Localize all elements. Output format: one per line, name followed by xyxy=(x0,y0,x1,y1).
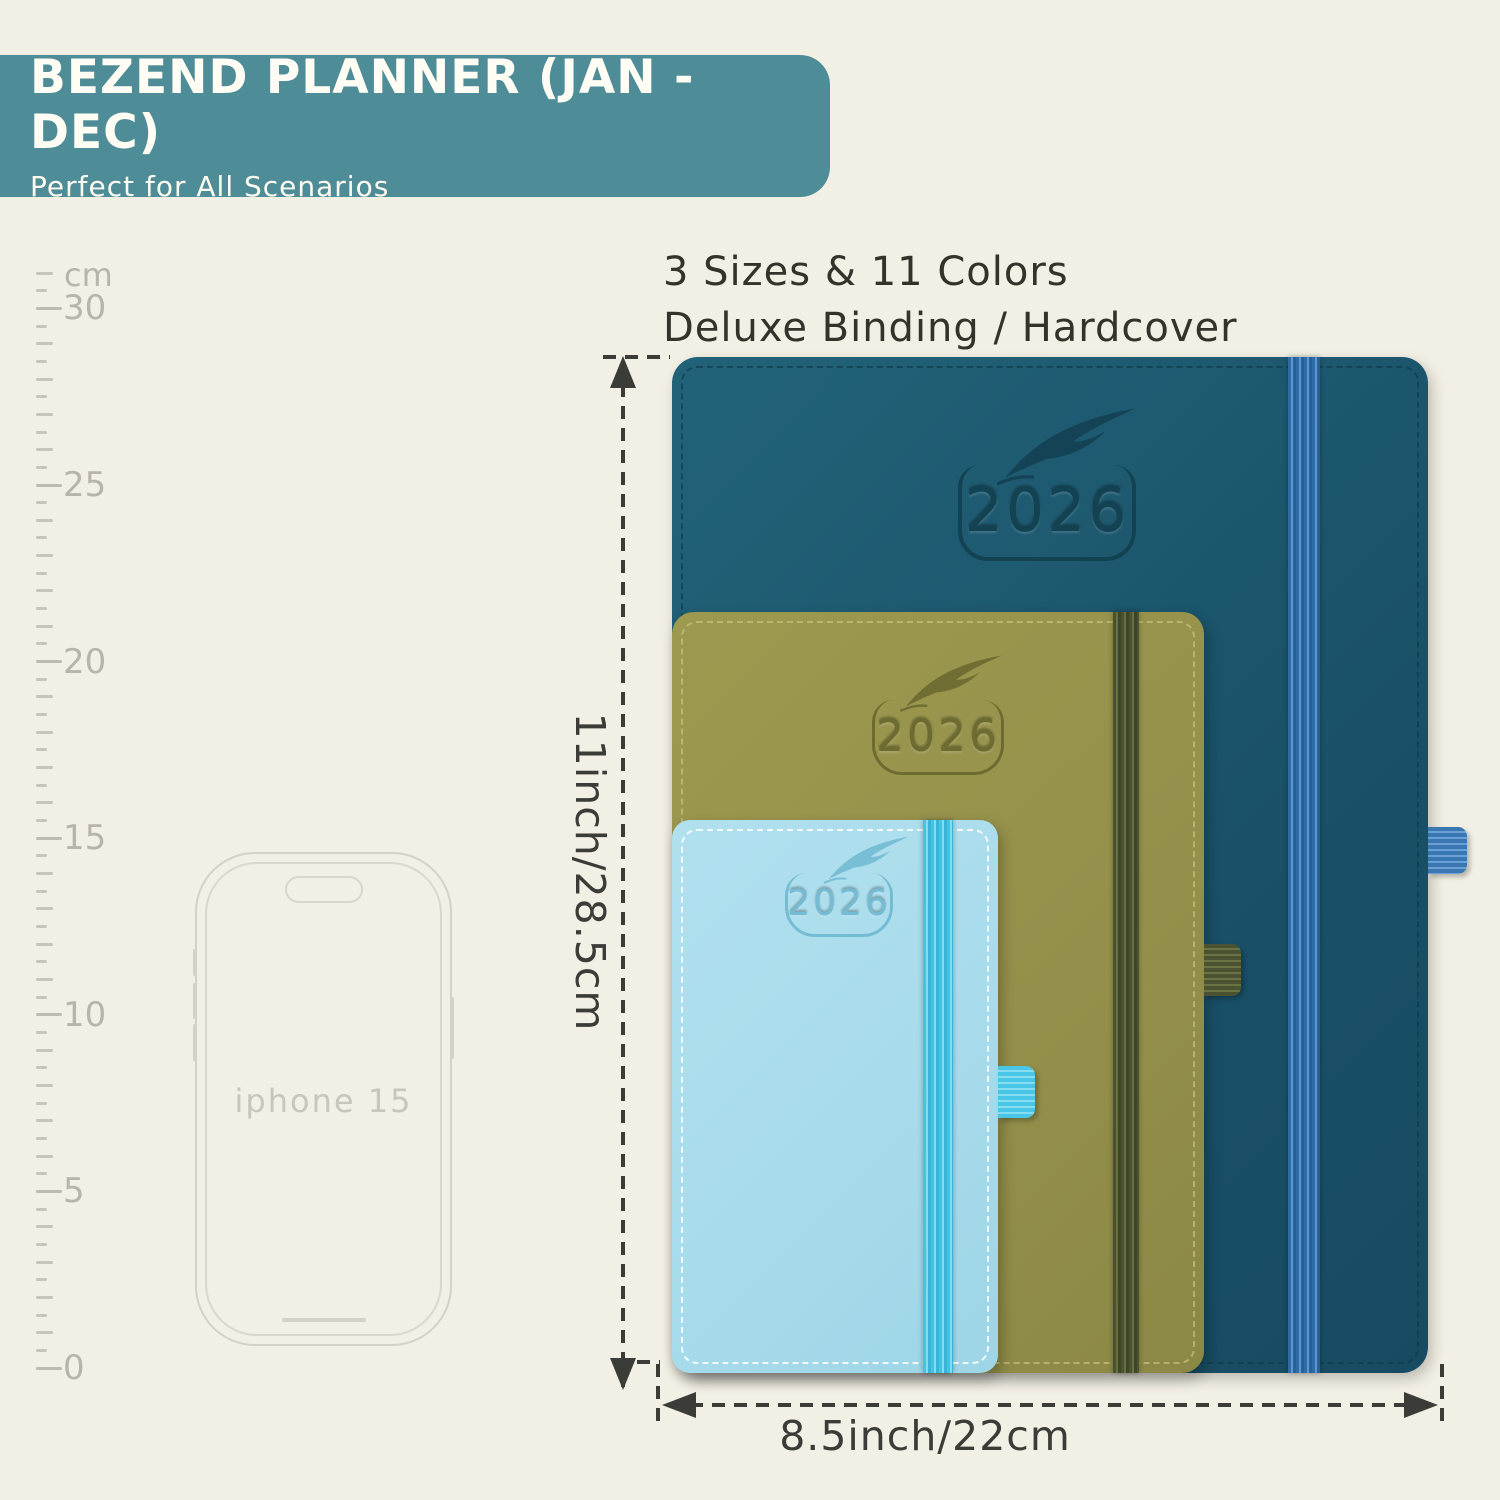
ruler-tick xyxy=(36,1331,53,1334)
ruler-tick xyxy=(36,1349,47,1352)
feature-line-binding: Deluxe Binding / Hardcover xyxy=(663,300,1238,356)
ruler-number-label: 15 xyxy=(63,818,106,858)
arrow-right-icon xyxy=(1404,1392,1438,1418)
ruler-tick xyxy=(36,395,47,398)
width-dimension-label: 8.5inch/22cm xyxy=(725,1412,1125,1460)
ruler-tick xyxy=(36,943,53,946)
phone-side-button xyxy=(193,949,196,976)
phone-side-button xyxy=(451,997,454,1059)
ruler-tick xyxy=(36,925,47,928)
pen-loop xyxy=(1204,944,1241,996)
embossed-year: 2026 xyxy=(787,883,891,924)
home-indicator xyxy=(282,1318,366,1322)
ruler-tick xyxy=(36,960,47,963)
elastic-band xyxy=(923,820,953,1373)
ruler-tick xyxy=(36,1137,47,1140)
ruler-number-label: 20 xyxy=(63,642,106,682)
phone-side-button xyxy=(193,1024,196,1061)
ruler-tick xyxy=(36,678,47,681)
ruler-tick xyxy=(36,342,53,345)
dynamic-island-icon xyxy=(285,876,363,903)
ruler-tick xyxy=(36,1296,53,1299)
ruler-tick xyxy=(36,642,47,645)
ruler-tick xyxy=(36,695,53,698)
ruler-tick xyxy=(36,1102,47,1105)
ruler-tick xyxy=(36,1243,47,1246)
ruler-tick xyxy=(36,572,47,575)
ruler-tick xyxy=(36,766,53,769)
phone-outline: iphone 15 xyxy=(195,852,452,1346)
ruler-tick xyxy=(36,1190,62,1193)
header-subtitle: Perfect for All Scenarios xyxy=(30,170,830,203)
ruler-tick xyxy=(36,1066,47,1069)
ruler-tick xyxy=(36,801,53,804)
ruler-tick xyxy=(36,1013,62,1016)
ruler-number-label: 0 xyxy=(63,1348,85,1388)
pen-loop xyxy=(1428,827,1467,874)
year-logo-frame: 2026 xyxy=(785,873,893,937)
ruler-tick xyxy=(36,854,47,857)
ruler-tick xyxy=(36,713,47,716)
ruler-tick xyxy=(36,996,47,999)
arrow-up-icon xyxy=(610,356,636,388)
ruler-tick xyxy=(36,378,53,381)
feature-line-sizes-colors: 3 Sizes & 11 Colors xyxy=(663,244,1238,300)
ruler-tick xyxy=(36,1084,53,1087)
ruler-tick xyxy=(36,1172,47,1175)
phone-label: iphone 15 xyxy=(197,1082,450,1120)
ruler-tick xyxy=(36,784,47,787)
ruler-tick xyxy=(36,554,53,557)
header-title: BEZEND PLANNER (JAN - DEC) xyxy=(30,50,830,160)
ruler-tick xyxy=(36,360,47,363)
ruler-tick xyxy=(36,519,53,522)
product-image-canvas: BEZEND PLANNER (JAN - DEC) Perfect for A… xyxy=(0,0,1500,1500)
ruler-tick xyxy=(36,466,47,469)
ruler-number-label: 10 xyxy=(63,995,106,1035)
ruler-tick xyxy=(36,1119,53,1122)
ruler-number-label: 25 xyxy=(63,465,106,505)
ruler-tick xyxy=(36,1155,53,1158)
ruler-tick xyxy=(36,837,62,840)
ruler-tick xyxy=(36,289,47,292)
ruler-tick xyxy=(36,731,53,734)
ruler-tick xyxy=(36,1314,47,1317)
ruler-tick xyxy=(36,325,47,328)
ruler-tick xyxy=(36,1049,53,1052)
ruler-tick xyxy=(36,625,53,628)
ruler-tick xyxy=(36,1278,47,1281)
embossed-year: 2026 xyxy=(965,476,1130,546)
ruler-tick xyxy=(36,1367,62,1370)
pen-loop xyxy=(998,1066,1035,1118)
ruler-tick xyxy=(36,872,53,875)
planner-small: 2026 xyxy=(672,820,998,1373)
ruler-tick xyxy=(36,589,53,592)
ruler-tick xyxy=(36,484,62,487)
ruler-tick xyxy=(36,907,53,910)
ruler-number-label: 30 xyxy=(63,288,106,328)
ruler-number-label: 5 xyxy=(63,1171,85,1211)
header-banner: BEZEND PLANNER (JAN - DEC) Perfect for A… xyxy=(0,55,830,197)
ruler-tick xyxy=(36,413,53,416)
feature-text-block: 3 Sizes & 11 Colors Deluxe Binding / Har… xyxy=(663,244,1238,356)
ruler-tick xyxy=(36,748,47,751)
ruler: cm 302520151050 xyxy=(36,248,216,1408)
ruler-tick xyxy=(36,607,47,610)
phone-side-button xyxy=(193,983,196,1019)
ruler-tick xyxy=(36,1208,47,1211)
ruler-tick xyxy=(36,890,47,893)
ruler-tick xyxy=(36,501,47,504)
year-logo-frame: 2026 xyxy=(958,465,1136,561)
ruler-tick xyxy=(36,448,53,451)
height-dimension-label: 11inch/28.5cm xyxy=(566,662,614,1082)
ruler-tick xyxy=(36,819,47,822)
ruler-tick xyxy=(36,1261,53,1264)
ruler-tick xyxy=(36,307,62,310)
ruler-tick xyxy=(36,536,47,539)
elastic-band xyxy=(1288,357,1320,1373)
embossed-year: 2026 xyxy=(876,711,1000,762)
ruler-tick xyxy=(36,272,53,275)
year-logo-frame: 2026 xyxy=(872,700,1004,775)
ruler-tick xyxy=(36,660,62,663)
elastic-band xyxy=(1113,612,1139,1373)
ruler-tick xyxy=(36,1225,53,1228)
arrow-left-icon xyxy=(662,1392,696,1418)
ruler-tick xyxy=(36,431,47,434)
ruler-tick xyxy=(36,978,53,981)
ruler-tick xyxy=(36,1031,47,1034)
